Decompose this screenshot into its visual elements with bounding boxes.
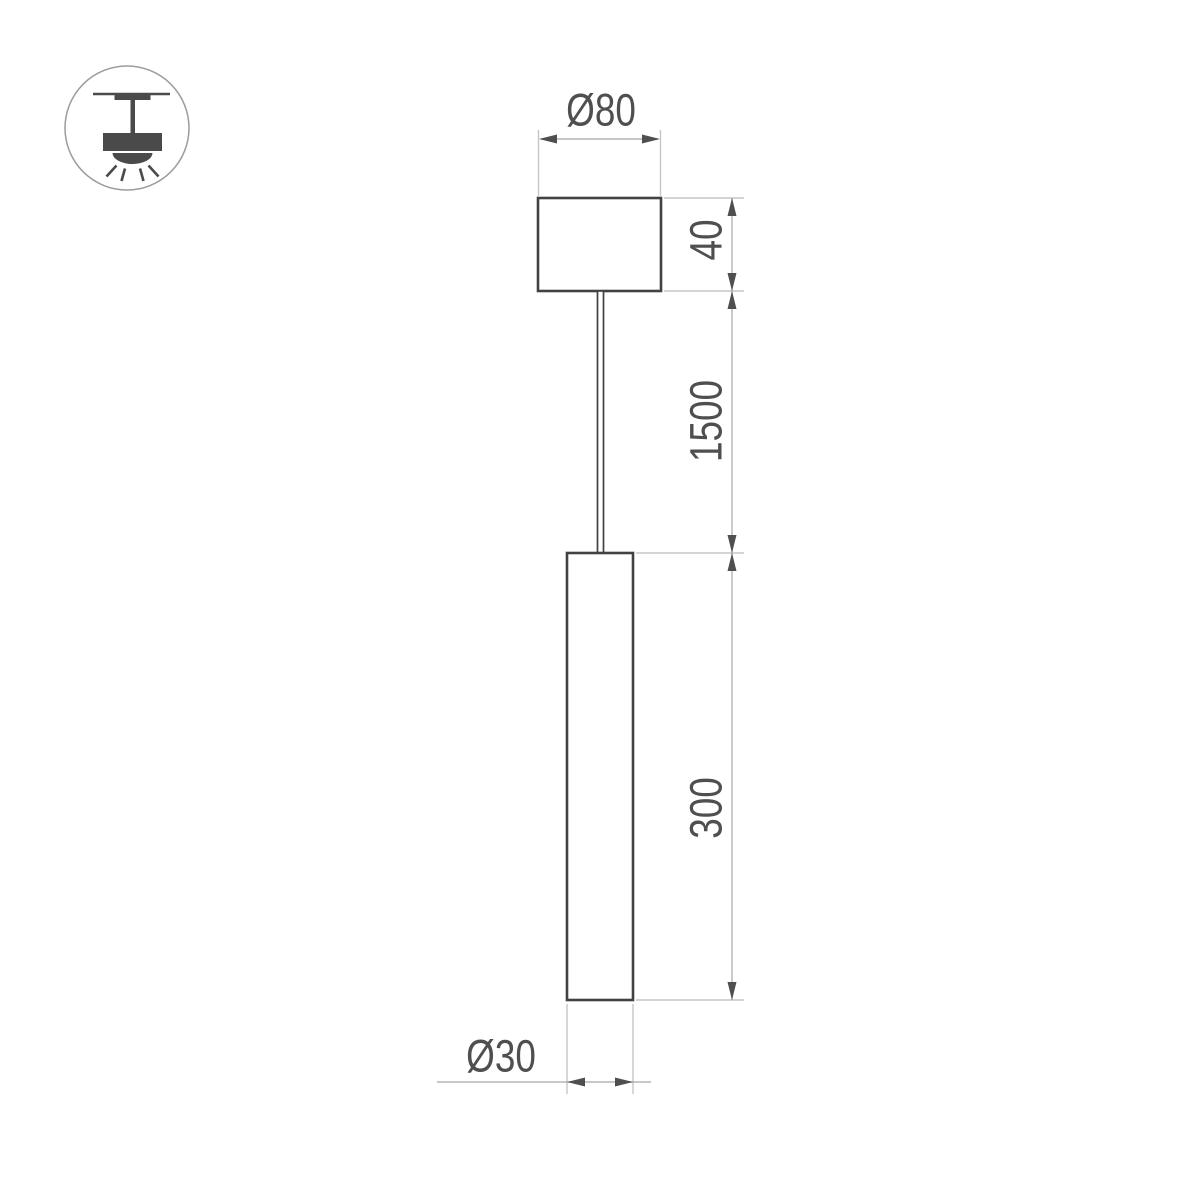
arrow-1500-bottom <box>728 535 737 553</box>
arrow-40-bottom <box>728 273 737 291</box>
icon-lamp-body <box>103 133 162 151</box>
tube-outline <box>567 553 633 1000</box>
luminaire-outline <box>538 198 661 1000</box>
arrow-300-top <box>728 553 737 571</box>
suspension-cable <box>598 291 604 553</box>
arrow-1500-top <box>728 291 737 309</box>
arrow-300-bottom <box>728 982 737 1000</box>
ceiling-pendant-light-icon <box>65 66 189 190</box>
suspension-length-label: 1500 <box>684 380 729 462</box>
icon-stem <box>131 100 136 134</box>
arrow-dia80-right <box>642 135 660 144</box>
canopy-diameter-label: Ø80 <box>566 88 636 133</box>
canopy-outline <box>538 198 661 291</box>
arrow-dia30-right <box>615 1078 633 1087</box>
icon-circle <box>65 66 189 190</box>
tube-length-label: 300 <box>684 777 729 839</box>
arrow-dia80-left <box>539 135 557 144</box>
dimension-drawing <box>0 0 1200 1200</box>
arrow-dia30-left <box>567 1078 585 1087</box>
tube-diameter-label: Ø30 <box>466 1034 536 1079</box>
icon-mount-bar <box>115 94 151 100</box>
drawing-canvas: Ø80 40 1500 300 Ø30 <box>0 0 1200 1200</box>
arrow-40-top <box>728 198 737 216</box>
canopy-height-label: 40 <box>684 219 729 260</box>
